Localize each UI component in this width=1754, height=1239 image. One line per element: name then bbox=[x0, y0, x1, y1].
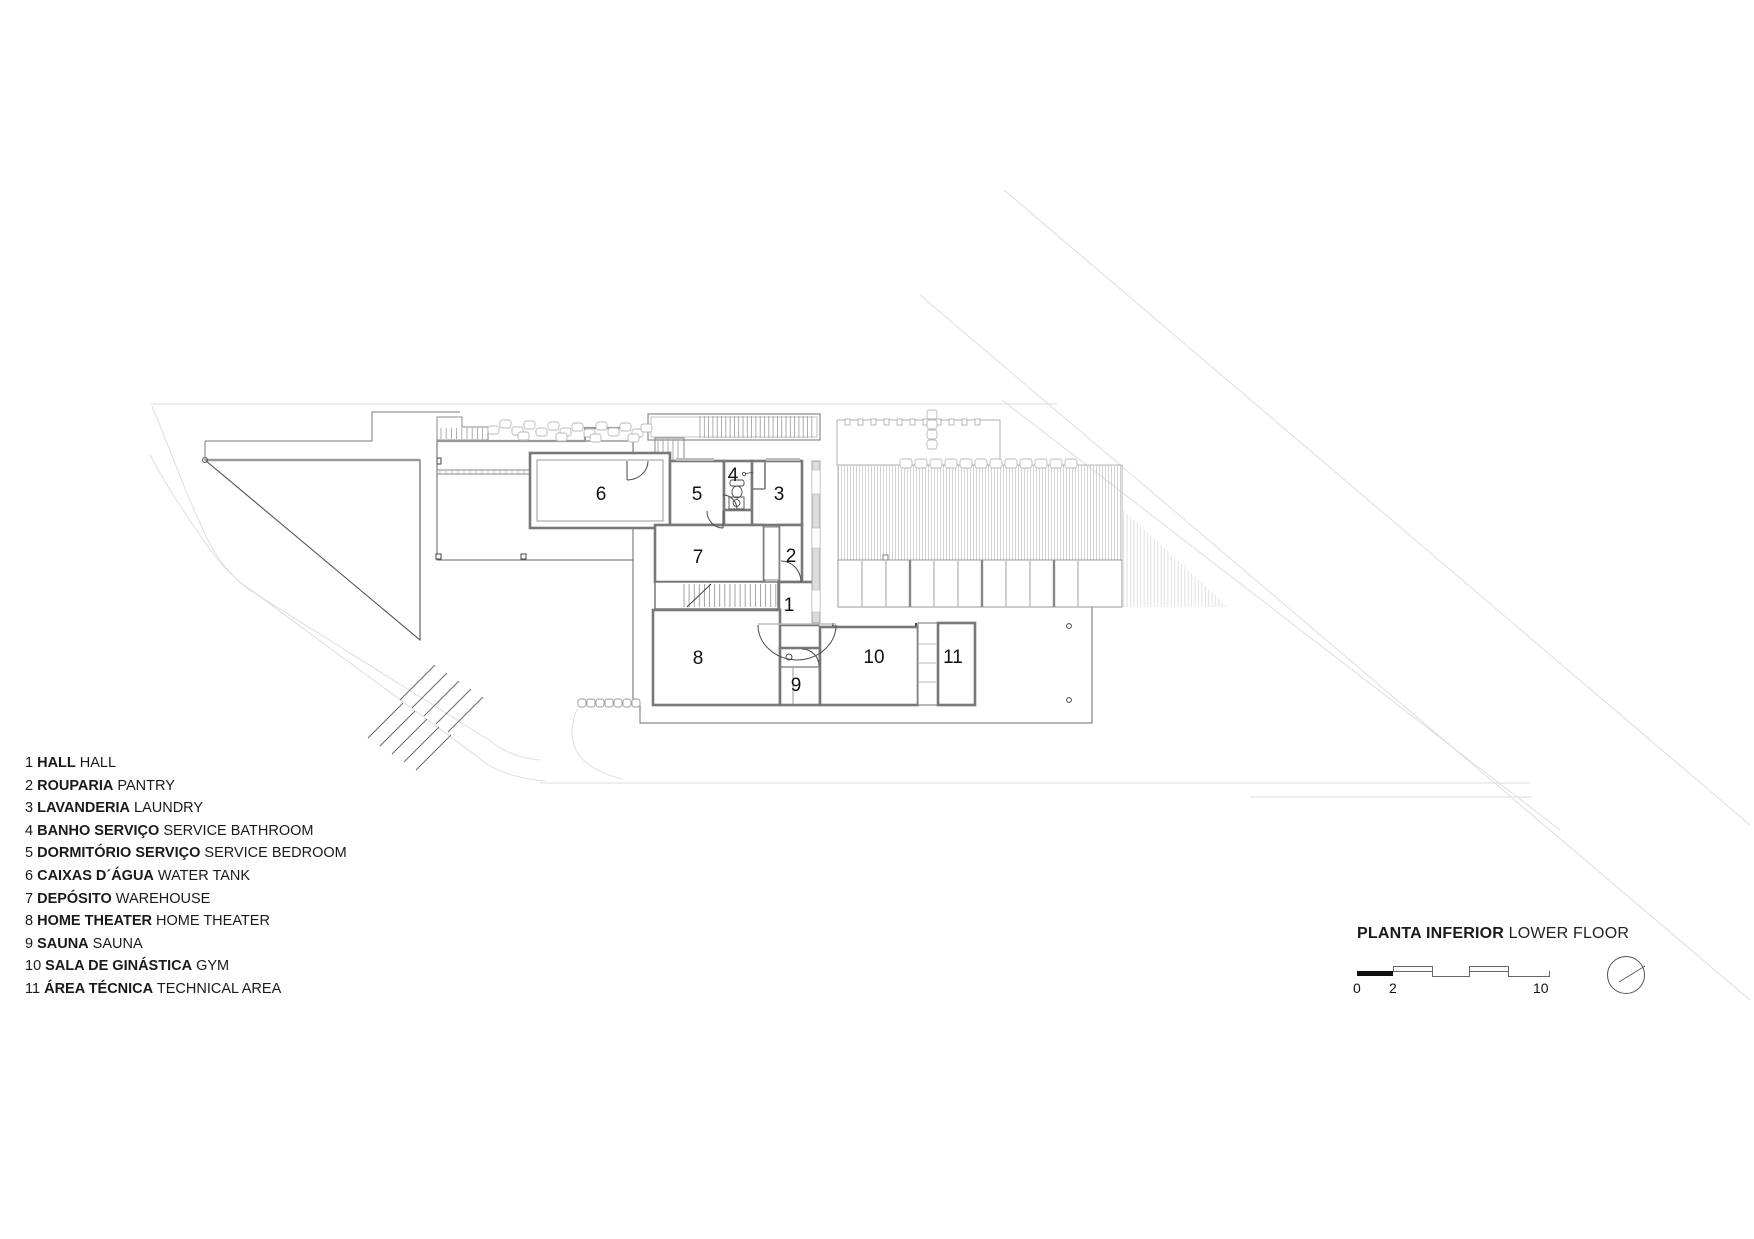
platform-stair bbox=[437, 417, 488, 440]
scale-segment bbox=[1508, 971, 1550, 977]
rail-terrace bbox=[837, 420, 1000, 465]
upper-wall-step bbox=[205, 412, 460, 441]
platform-post bbox=[521, 554, 526, 559]
floor-plan-sheet: 1234567891011 1 HALL HALL2 ROUPARIA PANT… bbox=[0, 0, 1754, 1239]
room-label-2: 2 bbox=[786, 546, 797, 567]
slope-hatch-tail bbox=[1122, 509, 1228, 607]
legend-item: 8 HOME THEATER HOME THEATER bbox=[25, 910, 347, 933]
path-ramp-arc bbox=[572, 709, 622, 779]
scale-segment bbox=[1393, 966, 1433, 972]
legend-item: 10 SALA DE GINÁSTICA GYM bbox=[25, 955, 347, 978]
driveway-outer-edge bbox=[152, 406, 545, 781]
retaining-wall-panels bbox=[838, 560, 1122, 607]
slope-hatch-main bbox=[838, 465, 1122, 560]
bridge-walkway bbox=[437, 470, 532, 474]
legend-item: 3 LAVANDERIA LAUNDRY bbox=[25, 797, 347, 820]
legend-item: 11 ÁREA TÉCNICA TECHNICAL AREA bbox=[25, 978, 347, 1001]
scale-label-10: 10 bbox=[1533, 980, 1549, 996]
scale-segment bbox=[1432, 971, 1470, 977]
terrace-triangle bbox=[205, 460, 420, 640]
stone-band-top bbox=[488, 420, 652, 442]
room-label-3: 3 bbox=[774, 484, 785, 505]
scale-label-0: 0 bbox=[1353, 980, 1361, 996]
stairwell bbox=[655, 582, 778, 609]
stone-path bbox=[578, 699, 640, 707]
stone-column bbox=[927, 410, 937, 449]
legend-item: 9 SAUNA SAUNA bbox=[25, 933, 347, 956]
terrace-post bbox=[1067, 624, 1072, 629]
shelf-strip bbox=[918, 623, 938, 705]
room-label-10: 10 bbox=[863, 647, 884, 668]
room-label-6: 6 bbox=[596, 484, 607, 505]
closet-column bbox=[764, 527, 779, 580]
legend-item: 7 DEPÓSITO WAREHOUSE bbox=[25, 888, 347, 911]
scale-label-2: 2 bbox=[1389, 980, 1397, 996]
legend-item: 2 ROUPARIA PANTRY bbox=[25, 775, 347, 798]
embankment-hatch-strokes bbox=[368, 665, 483, 770]
scale-segment bbox=[1469, 966, 1509, 972]
floor-plan-drawing: 1234567891011 bbox=[0, 0, 1754, 1239]
room-label-7: 7 bbox=[693, 547, 704, 568]
title-portuguese: PLANTA INFERIOR bbox=[1357, 925, 1504, 942]
legend-item: 5 DORMITÓRIO SERVIÇO SERVICE BEDROOM bbox=[25, 842, 347, 865]
legend-item: 4 BANHO SERVIÇO SERVICE BATHROOM bbox=[25, 820, 347, 843]
terrace-post bbox=[1067, 698, 1072, 703]
deck-stair-treads bbox=[700, 416, 812, 438]
drawing-title: PLANTA INFERIOR LOWER FLOOR bbox=[1357, 925, 1629, 943]
legend-item: 6 CAIXAS D´ÁGUA WATER TANK bbox=[25, 865, 347, 888]
platform-post bbox=[436, 554, 441, 559]
title-english: LOWER FLOOR bbox=[1509, 925, 1629, 942]
driveway-inner-edge bbox=[150, 455, 540, 760]
room-label-8: 8 bbox=[693, 648, 704, 669]
property-diagonal-3 bbox=[1002, 400, 1560, 830]
room-label-9: 9 bbox=[791, 675, 802, 696]
hatch-marker bbox=[883, 555, 888, 560]
property-diagonal-2 bbox=[920, 295, 1750, 1000]
room-label-1: 1 bbox=[784, 595, 795, 616]
north-arrow-icon bbox=[1603, 953, 1651, 999]
room-label-4: 4 bbox=[728, 465, 739, 486]
room-label-11: 11 bbox=[943, 647, 963, 668]
platform-post bbox=[437, 458, 441, 464]
legend-item: 1 HALL HALL bbox=[25, 752, 347, 775]
scale-bar: 0 2 10 bbox=[1357, 965, 1557, 999]
scale-segment bbox=[1357, 971, 1393, 976]
room-label-5: 5 bbox=[692, 484, 703, 505]
legend-list: 1 HALL HALL2 ROUPARIA PANTRY3 LAVANDERIA… bbox=[25, 752, 347, 1001]
room-7-warehouse bbox=[655, 525, 764, 582]
